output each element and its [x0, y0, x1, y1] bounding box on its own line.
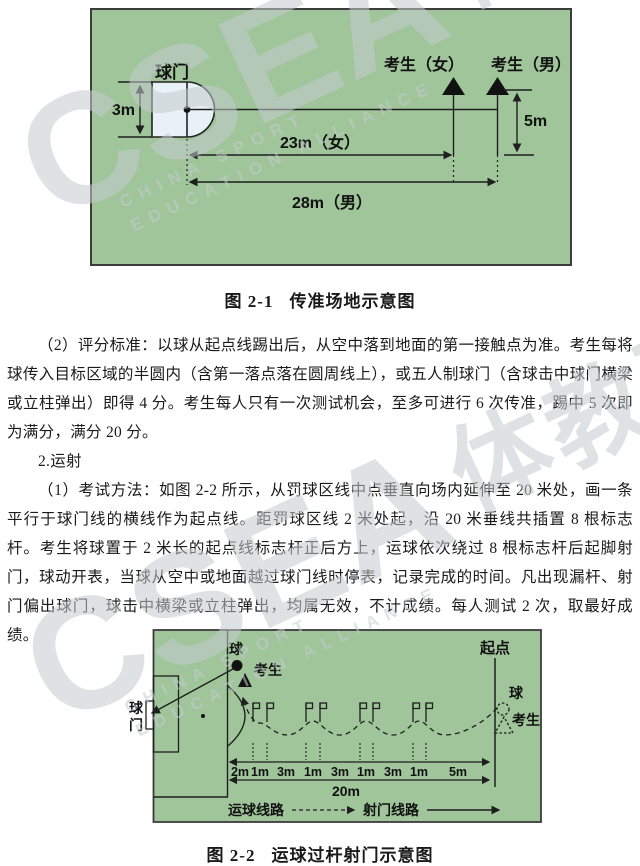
- ball-label: 球: [229, 641, 244, 657]
- segment-label: 1m: [410, 765, 428, 779]
- segment-label: 2m: [231, 765, 249, 779]
- caption-title: 运球过杆射门示意图: [271, 846, 433, 865]
- figure-2-1-canvas: 球门 3m 考生（女） 考生（男） 23m（女） 28m（男）: [90, 8, 572, 266]
- examinee-male-label: 考生（男）: [491, 55, 571, 74]
- figure-2-1-caption: 图 2-1传准场地示意图: [0, 287, 640, 312]
- paragraph-test-method: （1）考试方法：如图 2-2 所示，从罚球区线中点垂直向场内延伸至 20 米处，…: [7, 476, 633, 650]
- goal-box: [146, 701, 154, 729]
- legend-shoot-label: 射门线路: [362, 802, 420, 818]
- legend-dribble-label: 运球线路: [228, 802, 285, 818]
- body-text: （2）评分标准：以球从起点线踢出后，从空中落到地面的第一接触点为准。考生每将球传…: [7, 331, 633, 650]
- caption-number: 图 2-2: [207, 846, 256, 865]
- examinee-female-label: 考生（女）: [384, 55, 464, 74]
- dist-female-label: 23m（女）: [280, 133, 360, 152]
- dist-male-label: 28m（男）: [292, 194, 372, 212]
- document-page: 球门 3m 考生（女） 考生（男） 23m（女） 28m（男）: [0, 0, 640, 866]
- paragraph-scoring: （2）评分标准：以球从起点线踢出后，从空中落到地面的第一接触点为准。考生每将球传…: [7, 331, 633, 447]
- segment-label: 3m: [384, 765, 402, 779]
- start-label: 起点: [479, 640, 510, 657]
- total-label: 20m: [332, 783, 360, 799]
- start-examinee-label: 考生: [512, 712, 540, 728]
- goal-label-char2: 门: [129, 717, 143, 733]
- ball-marker: [232, 660, 243, 671]
- segment-label: 1m: [251, 765, 269, 779]
- segment-label: 3m: [277, 765, 295, 779]
- paragraph-heading-yunshe: 2.运射: [7, 447, 633, 476]
- figure-2-2-canvas: 球 门 球 考生: [122, 629, 545, 823]
- caption-title: 传准场地示意图: [289, 292, 415, 311]
- goal-label-char1: 球: [129, 700, 144, 716]
- segment-label: 1m: [304, 765, 322, 779]
- segment-label: 5m: [449, 765, 467, 779]
- figure-2-2-caption: 图 2-2运球过杆射门示意图: [0, 841, 640, 866]
- examinee-label: 考生: [254, 662, 282, 678]
- start-ball-label: 球: [509, 685, 524, 701]
- figure-2-2: 球 门 球 考生: [122, 629, 545, 823]
- segment-label: 1m: [357, 765, 375, 779]
- figure-2-1: 球门 3m 考生（女） 考生（男） 23m（女） 28m（男）: [90, 8, 572, 266]
- goal-height-label: 3m: [112, 102, 135, 119]
- segment-label: 3m: [331, 765, 349, 779]
- penalty-spot: [201, 714, 205, 718]
- caption-number: 图 2-1: [225, 292, 274, 311]
- offset-5m-label: 5m: [524, 113, 547, 130]
- goal-label: 球门: [155, 62, 189, 82]
